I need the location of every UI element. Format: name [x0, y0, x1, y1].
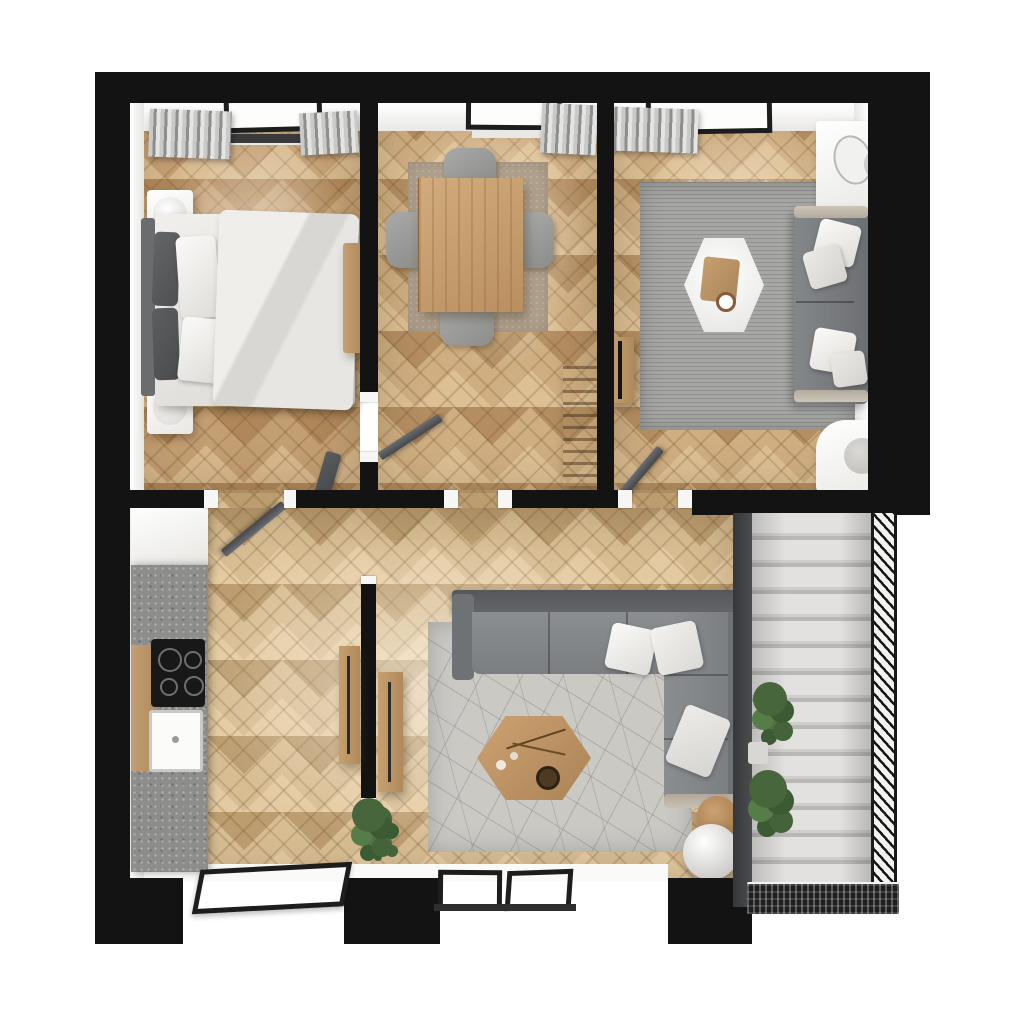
bedroom-door-jamb-top — [360, 392, 378, 402]
wall-mid-2 — [296, 490, 444, 508]
stair-railing — [871, 513, 897, 899]
cooktop-burner-2 — [184, 651, 202, 669]
dining-curtain-right — [540, 103, 599, 156]
lounge-sofa-armrest-left — [452, 594, 474, 680]
dining-table — [418, 178, 523, 312]
wall-left — [95, 72, 130, 882]
lounge-plant — [352, 798, 386, 832]
coffee-table-cup — [716, 292, 736, 312]
sink-drain — [172, 736, 179, 743]
stair-stringer — [733, 513, 752, 907]
wall-bedroom-dining-upper — [360, 95, 378, 398]
cooktop-burner-3 — [160, 678, 178, 696]
stair-bottom-rail — [747, 882, 899, 914]
sphere-pouf — [683, 824, 739, 880]
jamb-mid-2b — [498, 490, 512, 508]
table-candle-1 — [496, 760, 506, 770]
kitchen-tall-cabinet — [131, 503, 208, 567]
wall-dining-living — [597, 95, 614, 508]
lounge-sofa-back — [452, 590, 742, 614]
kitchen-window — [192, 862, 352, 914]
lounge-pillow-2 — [650, 620, 705, 677]
cooktop-burner-1 — [158, 648, 182, 672]
stair-plant-1 — [753, 682, 787, 716]
stair-plant-2 — [749, 770, 787, 808]
living-sofa-pillow-4 — [830, 350, 868, 388]
wall-mid-4 — [692, 490, 868, 515]
decor-ladder — [563, 366, 597, 486]
jamb-mid-1a — [204, 490, 218, 508]
bedroom-door-jamb-bottom — [360, 452, 378, 462]
bed-pillow-1 — [175, 235, 221, 320]
bedroom-curtain-right — [299, 111, 359, 156]
floor-plan-canvas — [0, 0, 1024, 1024]
cooktop-burner-4 — [184, 676, 204, 696]
tv-screen — [618, 341, 622, 399]
bed-dark-pillow-2 — [152, 308, 180, 381]
living-sofa-armrest-bottom — [794, 390, 868, 402]
bedroom-curtain-left — [148, 109, 232, 160]
sideboard-lounge-handle — [388, 682, 391, 782]
stair-plant-pot — [748, 742, 768, 764]
cooktop — [151, 639, 205, 707]
living-curtain-left — [609, 106, 698, 153]
lounge-pillow-1 — [604, 622, 659, 677]
pillar-bottom-2 — [344, 878, 440, 944]
partition-wall — [361, 584, 376, 800]
table-round-tray — [536, 766, 560, 790]
dining-chair-right — [520, 212, 554, 268]
sideboard-kitchen-handle — [347, 656, 350, 754]
living-sofa-armrest-top — [794, 206, 868, 218]
living-sofa-seam — [796, 301, 854, 303]
wall-top — [95, 72, 930, 103]
pillar-bottom-1 — [95, 878, 183, 944]
wall-mid-1 — [128, 490, 212, 508]
table-candle-2 — [510, 752, 518, 760]
bed-duvet — [213, 210, 360, 411]
dining-chair-left — [386, 212, 422, 268]
wall-right — [868, 72, 930, 515]
wall-mid-3 — [512, 490, 620, 508]
lounge-window-rail — [434, 904, 576, 911]
jamb-mid-3a — [618, 490, 632, 508]
jamb-mid-3b — [678, 490, 692, 508]
jamb-mid-2a — [444, 490, 458, 508]
dining-chair-bottom — [440, 308, 494, 346]
